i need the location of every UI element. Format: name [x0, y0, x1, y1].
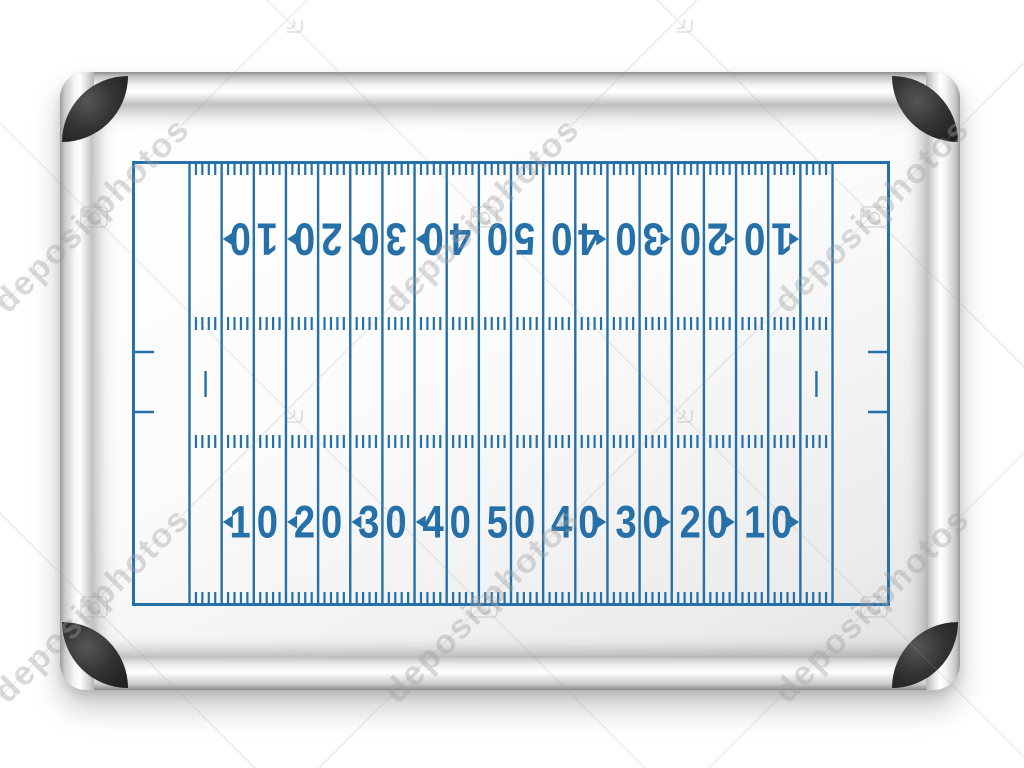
frame-rail-top: [60, 72, 960, 106]
svg-text:2: 2: [321, 214, 342, 265]
whiteboard: 102030405040302010102030405040302010: [60, 72, 960, 690]
svg-text:0: 0: [680, 214, 701, 265]
svg-text:0: 0: [257, 497, 278, 548]
svg-text:0: 0: [551, 214, 572, 265]
svg-text:5: 5: [514, 214, 535, 265]
svg-text:0: 0: [514, 497, 535, 548]
svg-text:0: 0: [385, 497, 406, 548]
svg-text:5: 5: [487, 497, 508, 548]
svg-text:1: 1: [257, 214, 278, 265]
svg-text:0: 0: [615, 214, 636, 265]
svg-text:3: 3: [385, 214, 406, 265]
frame-rail-right: [926, 72, 960, 690]
svg-text:0: 0: [487, 214, 508, 265]
svg-text:4: 4: [450, 214, 471, 265]
svg-text:4: 4: [551, 497, 572, 548]
stock-photo-canvas: 102030405040302010102030405040302010 dep…: [0, 0, 1024, 768]
frame-rail-bottom: [60, 656, 960, 690]
football-field-diagram: 102030405040302010102030405040302010: [132, 161, 890, 606]
svg-text:2: 2: [680, 497, 701, 548]
frame-rail-left: [60, 72, 94, 690]
svg-text:0: 0: [450, 497, 471, 548]
svg-text:0: 0: [744, 214, 765, 265]
svg-text:1: 1: [744, 497, 765, 548]
svg-text:3: 3: [615, 497, 636, 548]
svg-text:0: 0: [321, 497, 342, 548]
